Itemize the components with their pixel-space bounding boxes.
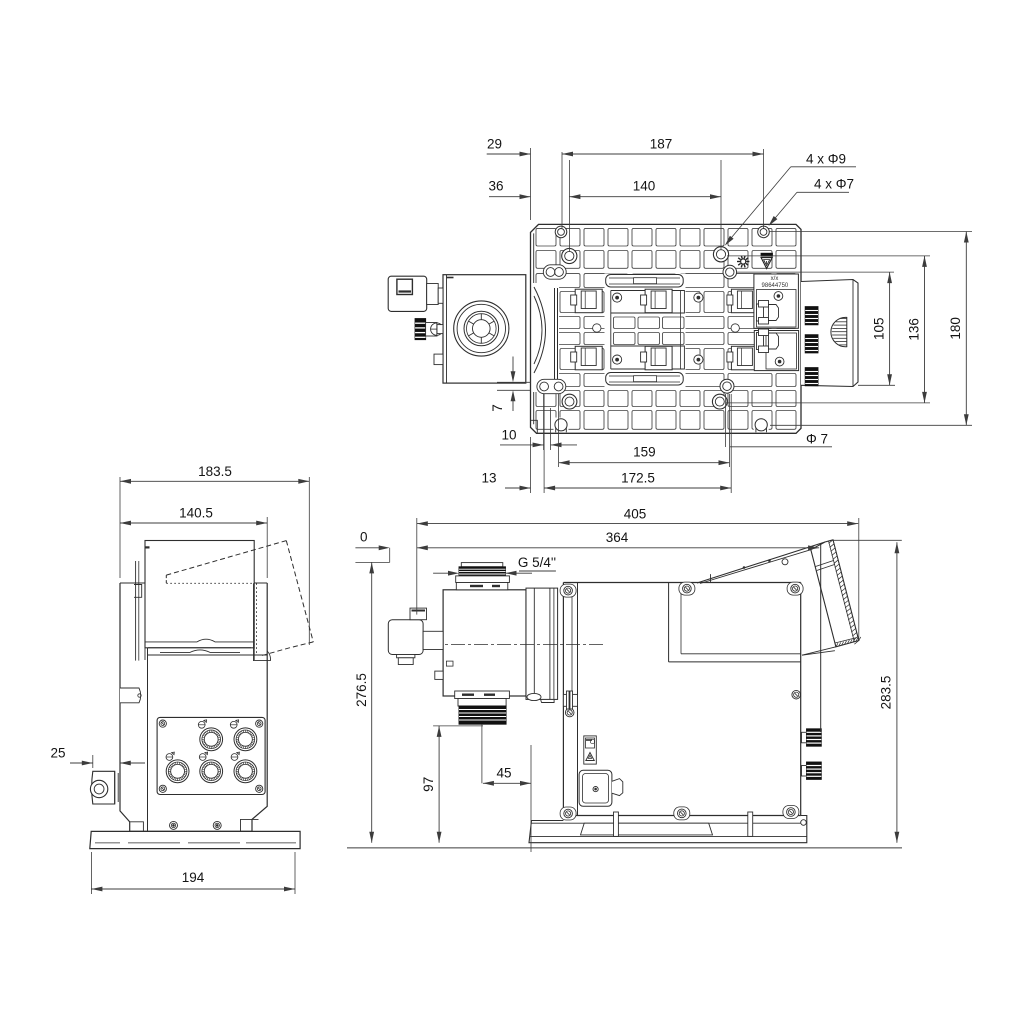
svg-text:194: 194 [182, 870, 205, 885]
svg-text:29: 29 [487, 137, 502, 152]
svg-text:159: 159 [633, 445, 656, 460]
svg-text:172.5: 172.5 [621, 471, 655, 486]
svg-text:140.5: 140.5 [179, 506, 213, 521]
svg-text:Φ 7: Φ 7 [806, 432, 828, 447]
svg-text:13: 13 [481, 471, 496, 486]
svg-text:x/x: x/x [771, 276, 779, 282]
svg-text:25: 25 [50, 746, 65, 761]
svg-text:0: 0 [360, 529, 368, 544]
svg-text:187: 187 [650, 137, 673, 152]
svg-text:7: 7 [490, 404, 505, 412]
svg-text:364: 364 [606, 530, 629, 545]
svg-text:45: 45 [496, 765, 511, 780]
svg-text:97: 97 [421, 777, 436, 792]
svg-text:183.5: 183.5 [198, 464, 232, 479]
svg-text:136: 136 [907, 318, 922, 341]
svg-text:105: 105 [872, 317, 887, 340]
svg-text:276.5: 276.5 [354, 673, 369, 707]
svg-text:4 x Φ9: 4 x Φ9 [806, 152, 846, 167]
svg-text:10: 10 [501, 428, 516, 443]
svg-text:G 5/4'': G 5/4'' [518, 555, 556, 570]
svg-text:405: 405 [624, 506, 647, 521]
svg-text:4 x Φ7: 4 x Φ7 [814, 177, 854, 192]
svg-text:140: 140 [633, 179, 656, 194]
svg-text:98644750: 98644750 [762, 283, 789, 289]
svg-text:180: 180 [948, 317, 963, 340]
svg-text:283.5: 283.5 [879, 676, 894, 710]
svg-text:36: 36 [488, 179, 503, 194]
